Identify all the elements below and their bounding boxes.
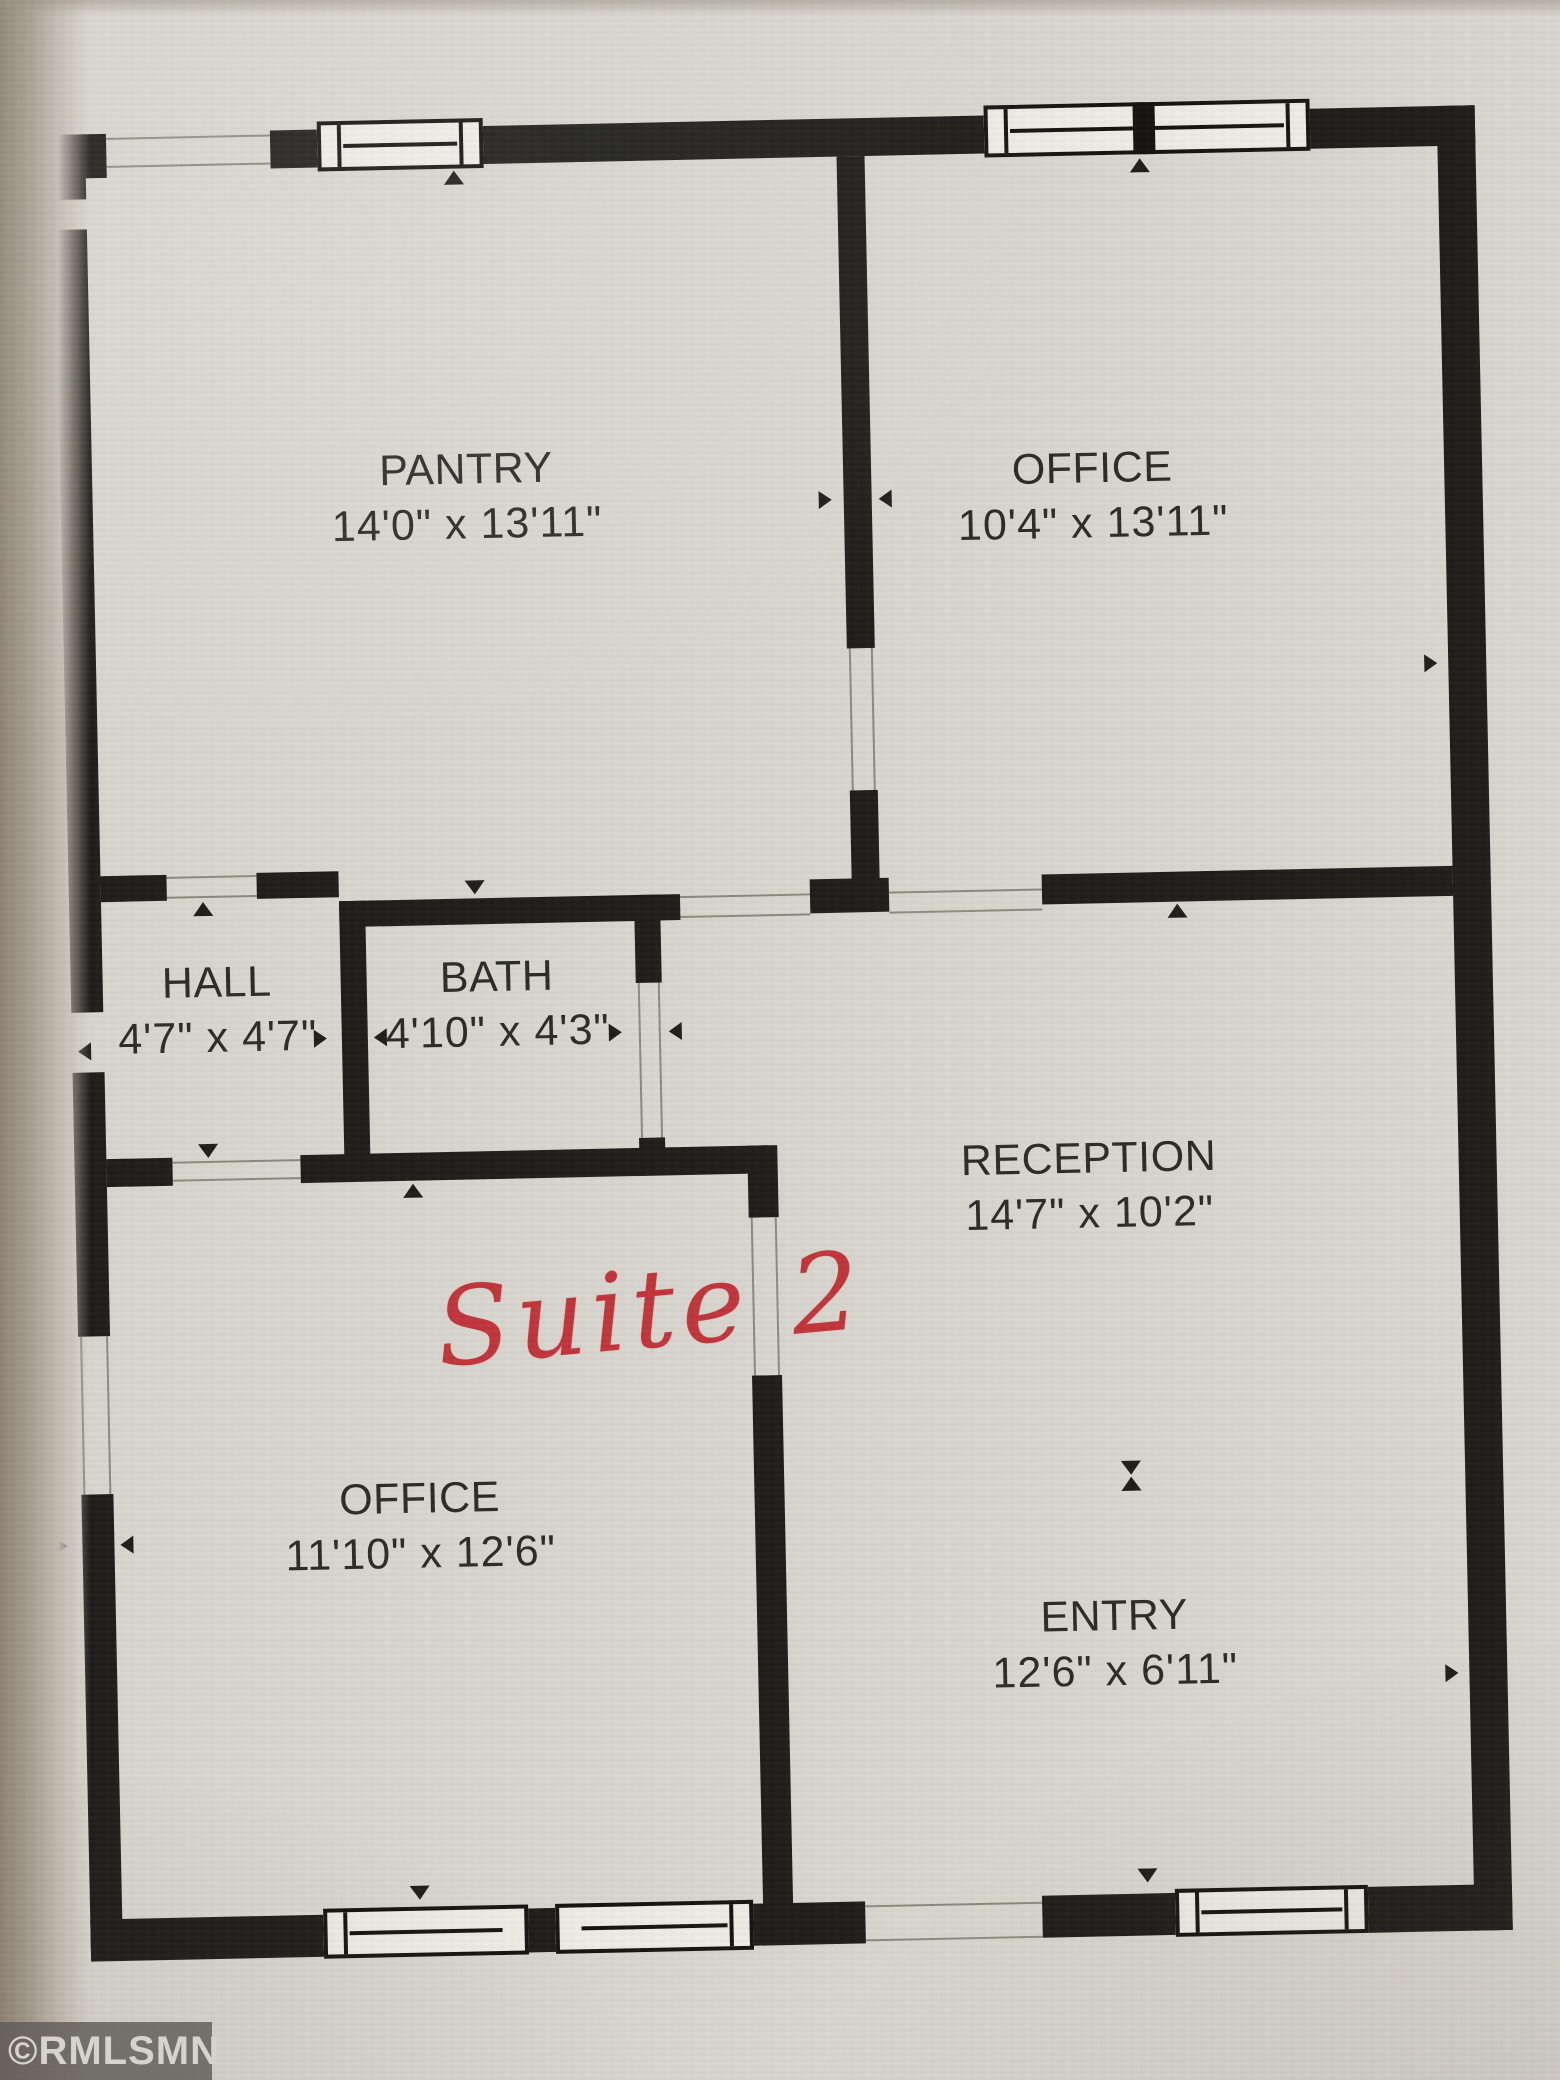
door-marker-icon <box>819 491 832 509</box>
rmlsmn-watermark: ©RMLSMN <box>0 2022 212 2080</box>
wall-segment <box>1437 105 1513 1930</box>
door-opening <box>172 1159 300 1182</box>
wall-segment <box>1368 1884 1513 1933</box>
door-marker-icon <box>54 1537 67 1555</box>
window-mullion <box>528 1908 556 1953</box>
wall-segment <box>339 894 680 927</box>
room-dimensions: 11'10" x 12'6" <box>285 1524 557 1585</box>
wall-segment <box>753 1901 866 1945</box>
room-dimensions: 10'4" x 13'11" <box>957 493 1229 554</box>
door-opening <box>106 134 271 167</box>
wall-segment <box>300 1145 768 1183</box>
wall-segment <box>1042 1893 1176 1938</box>
room-dimensions: 12'6" x 6'11" <box>992 1642 1239 1702</box>
room-label-hall: HALL 4'7" x 4'7" <box>117 954 318 1068</box>
wall-segment <box>53 134 86 200</box>
window-mullion <box>1132 102 1155 154</box>
window-sash <box>343 1912 348 1954</box>
window <box>983 99 1310 158</box>
opening-marker-icon <box>198 1144 218 1158</box>
window-sash <box>459 122 464 164</box>
window-sash <box>337 125 342 167</box>
wall-segment <box>810 878 890 914</box>
window <box>555 1900 754 1954</box>
window-sash <box>350 1928 503 1935</box>
floor-plan-photo: { "document": { "kind": "floor plan", "w… <box>0 0 1560 2080</box>
door-marker-icon <box>1424 654 1437 672</box>
window-sash <box>1201 1907 1342 1914</box>
room-name: ENTRY <box>991 1587 1238 1647</box>
door-marker-icon <box>609 1023 622 1041</box>
door-opening <box>680 893 810 918</box>
wall-segment <box>1042 866 1454 905</box>
opening-marker-icon <box>1167 903 1187 917</box>
room-name: BATH <box>384 948 609 1008</box>
room-dimensions: 14'7" x 10'2" <box>961 1184 1217 1244</box>
room-label-bath: BATH 4'10" x 4'3" <box>384 948 610 1063</box>
wall-segment <box>90 1915 324 1962</box>
room-name: OFFICE <box>956 439 1228 500</box>
door-opening <box>865 1902 1043 1942</box>
opening-marker-icon <box>410 1886 430 1900</box>
room-name: OFFICE <box>284 1469 556 1530</box>
opening-marker-icon <box>1130 158 1150 172</box>
opening-marker-icon <box>403 1184 423 1198</box>
window-sash <box>1195 1892 1200 1932</box>
room-name: RECEPTION <box>960 1129 1216 1189</box>
door-marker-icon <box>878 490 891 508</box>
room-dimensions: 14'0" x 13'11" <box>331 495 603 556</box>
wall-segment <box>747 1145 779 1218</box>
wall-segment <box>850 790 880 883</box>
window-sash <box>1153 123 1284 130</box>
room-label-office-lower: OFFICE 11'10" x 12'6" <box>284 1469 557 1585</box>
room-label-office-top: OFFICE 10'4" x 13'11" <box>956 439 1229 555</box>
opening-marker-icon <box>465 880 485 894</box>
room-dimensions: 4'7" x 4'7" <box>118 1009 318 1068</box>
wall-segment <box>73 1072 111 1337</box>
wall-segment <box>634 894 662 983</box>
wall-segment <box>270 130 318 169</box>
door-opening <box>166 875 256 899</box>
window-sash <box>1010 126 1141 133</box>
ceiling-break-marker-icon <box>1121 1477 1141 1491</box>
room-label-reception: RECEPTION 14'7" x 10'2" <box>960 1129 1218 1244</box>
room-label-pantry: PANTRY 14'0" x 13'11" <box>330 440 603 556</box>
wall-segment <box>339 901 371 1179</box>
room-label-entry: ENTRY 12'6" x 6'11" <box>991 1587 1239 1702</box>
window-sash <box>1344 1889 1349 1929</box>
door-marker-icon <box>669 1022 682 1040</box>
wall-segment <box>256 871 339 899</box>
window <box>1175 1885 1369 1937</box>
door-opening <box>638 983 663 1138</box>
room-name: HALL <box>117 954 317 1013</box>
wall-segment <box>55 229 103 1012</box>
window-sash <box>343 141 457 147</box>
wall-segment <box>752 1375 793 1906</box>
room-name: PANTRY <box>330 440 602 501</box>
door-opening <box>889 888 1042 913</box>
window <box>323 1904 529 1958</box>
door-opening <box>849 648 876 790</box>
window-sash <box>1285 103 1290 147</box>
wall-segment <box>106 1158 173 1187</box>
window-opening <box>80 1336 111 1495</box>
ceiling-break-marker-icon <box>1121 1461 1141 1475</box>
door-marker-icon <box>78 1042 91 1060</box>
wall-segment <box>837 156 875 648</box>
opening-marker-icon <box>1137 1868 1157 1882</box>
door-marker-icon <box>1445 1664 1458 1682</box>
floor-plan-drawing: PANTRY 14'0" x 13'11" OFFICE 10'4" x 13'… <box>0 0 1560 2080</box>
window-sash <box>729 1904 734 1946</box>
wall-segment <box>81 1494 123 1960</box>
window <box>317 118 484 171</box>
opening-marker-icon <box>193 902 213 916</box>
window-sash <box>582 1923 728 1930</box>
opening-marker-icon <box>444 170 464 184</box>
handwritten-suite-annotation: Suite 2 <box>431 1229 871 1392</box>
door-marker-icon <box>120 1536 133 1554</box>
room-dimensions: 4'10" x 4'3" <box>385 1003 610 1063</box>
window-sash <box>1004 109 1009 153</box>
wall-segment <box>100 875 167 902</box>
wall-segment <box>483 116 985 164</box>
